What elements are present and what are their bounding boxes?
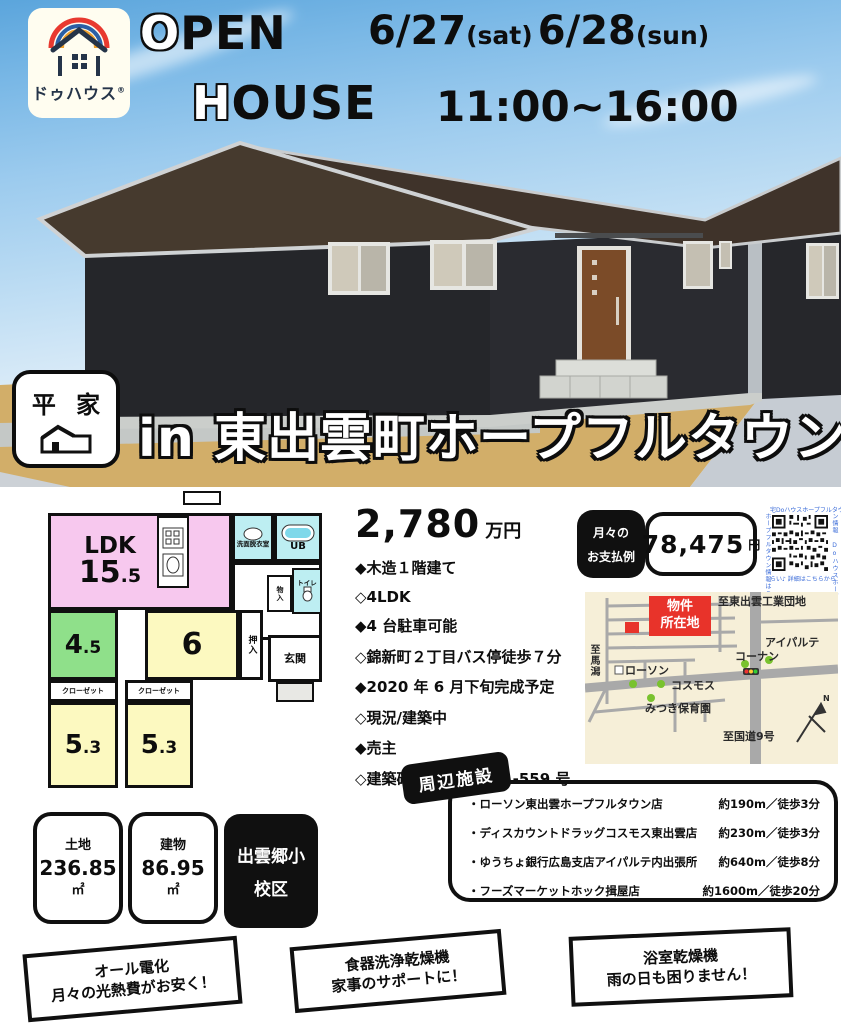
- closet-a: クローゼット: [48, 680, 118, 702]
- title-house-outlined-letter: H: [192, 76, 232, 130]
- land-unit: ㎡: [71, 884, 84, 897]
- feature-item: ◆2020 年 6 月下旬完成予定: [355, 676, 570, 697]
- title-house-rest: OUSE: [232, 76, 377, 130]
- map-label-cosmos: コスモス: [671, 677, 715, 693]
- facility-distance: 約230m／徒歩3分: [719, 825, 821, 841]
- building-value: 86.95: [141, 858, 204, 878]
- facility-distance: 約1600m／徒歩20分: [703, 883, 821, 899]
- qr-caption-left: ホープフルタウン情報はこ: [763, 513, 772, 597]
- facility-distance: 約640m／徒歩8分: [719, 854, 821, 870]
- room-4-5-size: 4: [65, 630, 83, 660]
- qr-caption-bottom: らい♪ 詳細はこちらから: [770, 574, 836, 583]
- toilet-icon: [302, 586, 313, 602]
- facility-row: ・フーズマーケットホック揖屋店 約1600m／徒歩20分: [468, 883, 820, 899]
- entrance-door-icon: [577, 246, 631, 369]
- floor-plan: LDK 15.5 洗面脱衣室 UB 物入 トイレ 4.5: [35, 500, 335, 800]
- facility-name: ・ディスカウントドラッグコスモス東出雲店: [468, 825, 697, 841]
- room-washroom-label: 洗面脱衣室: [237, 541, 270, 548]
- qr-code-icon: [772, 515, 828, 571]
- callout-line1: 物件: [667, 599, 693, 616]
- entrance-steps: [540, 360, 667, 398]
- title-open-rest: PEN: [180, 6, 287, 60]
- date-sunday: 6/28: [538, 8, 636, 54]
- date-saturday: 6/27: [368, 8, 466, 54]
- room-5-3-a-size-dec: .3: [83, 738, 101, 758]
- window-icon: [683, 241, 713, 289]
- room-toilet: トイレ: [292, 568, 322, 614]
- building-area-box: 建物 86.95 ㎡: [128, 812, 218, 924]
- room-6-size: 6: [182, 630, 203, 660]
- land-label: 土地: [65, 839, 91, 852]
- room-5-3-b-size-dec: .3: [159, 738, 177, 758]
- traffic-light-icon: [743, 668, 759, 675]
- entrance-genkan-label: 玄関: [284, 653, 306, 664]
- banner-line1: オール電化: [94, 958, 170, 979]
- map-label-konan: コーナン: [735, 648, 779, 664]
- door-canopy: [555, 233, 703, 238]
- payment-amount: 78,475: [642, 530, 744, 559]
- window-icon: [430, 240, 497, 290]
- poi-dot: [657, 680, 665, 688]
- room-5-3-b: 5.3: [125, 702, 193, 788]
- map-label-mitsuki: みつき保育園: [645, 700, 711, 716]
- feature-banner-all-electric: オール電化 月々の光熱費がお安く！: [22, 936, 242, 1022]
- kitchen-area: [157, 516, 189, 588]
- map-dest-left: 至馬潟: [586, 644, 601, 677]
- feature-banner-bath-dryer: 浴室乾燥機 雨の日も困りません！: [569, 927, 794, 1007]
- facility-name: ・ゆうちょ銀行広島支店アイパルテ内出張所: [468, 854, 697, 870]
- payment-label-2: お支払例: [587, 548, 635, 565]
- room-washroom: 洗面脱衣室: [232, 513, 274, 562]
- facility-name: ・フーズマーケットホック揖屋店: [468, 883, 640, 899]
- feature-item: ◇現況/建築中: [355, 707, 570, 728]
- price: 2,780 万円: [355, 502, 521, 546]
- payment-label-1: 月々の: [593, 524, 629, 541]
- qr-caption-right: ン情報 Doハウスホープ: [830, 513, 839, 600]
- map-dest-bottom: 至国道9号: [723, 728, 775, 744]
- storage-monoire: 物入: [267, 575, 292, 612]
- title-house: HOUSE: [192, 76, 377, 130]
- feature-item: ◆4 台駐車可能: [355, 615, 570, 636]
- company-logo: ドゥハウス®: [28, 8, 130, 118]
- lawson-icon: [615, 666, 623, 674]
- facility-row: ・ローソン東出雲ホープフルタウン店 約190m／徒歩3分: [468, 796, 820, 812]
- facility-distance: 約190m／徒歩3分: [719, 796, 821, 812]
- compass-icon: [797, 704, 825, 742]
- school-district-label: 校区: [254, 875, 288, 900]
- room-5-3-b-size: 5: [141, 730, 159, 760]
- room-4-5-size-dec: .5: [83, 638, 101, 658]
- closet-oshiire: 押入: [239, 610, 263, 680]
- open-house-flyer: { "header": { "logo": { "brand": "ドゥハウス"…: [0, 0, 841, 1024]
- price-amount: 2,780: [355, 502, 480, 546]
- entrance-porch: [276, 682, 314, 702]
- feature-item: ◆売主: [355, 737, 570, 758]
- property-marker: [625, 622, 639, 633]
- bathtub-icon: [281, 524, 315, 542]
- facility-row: ・ゆうちょ銀行広島支店アイパルテ内出張所 約640m／徒歩8分: [468, 854, 820, 870]
- building-unit: ㎡: [166, 884, 179, 897]
- poi-dot: [629, 680, 637, 688]
- room-ldk-size-dec: .5: [121, 565, 141, 587]
- banner-line2: 雨の日も困りません！: [606, 966, 756, 988]
- compass-label: N: [823, 694, 830, 703]
- banner-line1: 浴室乾燥機: [643, 948, 719, 966]
- feature-banner-dishwasher: 食器洗浄乾燥機 家事のサポートに！: [290, 929, 507, 1013]
- room-ldk: LDK 15.5: [48, 513, 232, 610]
- land-value: 236.85: [39, 858, 116, 878]
- payment-unit: 円: [748, 536, 760, 553]
- event-time: 11:00~16:00: [436, 82, 739, 131]
- date-saturday-dow: (sat): [466, 21, 533, 50]
- window-icon: [719, 241, 732, 269]
- feature-item: ◇錦新町２丁目バス停徒歩７分: [355, 646, 570, 667]
- nearby-facilities-box: ・ローソン東出雲ホープフルタウン店 約190m／徒歩3分 ・ディスカウントドラッ…: [448, 780, 838, 902]
- window-icon: [328, 242, 390, 295]
- facility-name: ・ローソン東出雲ホープフルタウン店: [468, 796, 663, 812]
- qr-block: 宅Doハウスホープフルタウ ホープフルタウン情報はこ ン情報 Doハウスホープ …: [763, 505, 839, 583]
- details-sheet: LDK 15.5 洗面脱衣室 UB 物入 トイレ 4.5: [0, 487, 841, 1024]
- house-icon: [40, 424, 92, 454]
- monthly-payment-amount-box: 78,475 円: [645, 512, 757, 576]
- closet-a-label: クローゼット: [62, 688, 104, 695]
- banner-line2: 月々の光熱費がお安く！: [51, 974, 217, 1003]
- facility-row: ・ディスカウントドラッグコスモス東出雲店 約230m／徒歩3分: [468, 825, 820, 841]
- monthly-payment-badge: 月々の お支払例: [577, 510, 645, 578]
- title-open-outlined-letter: O: [140, 6, 180, 60]
- window-icon: [806, 243, 839, 299]
- room-bath: UB: [274, 513, 322, 562]
- map-label-lawson: ローソン: [625, 662, 669, 678]
- banner-location: in 東出雲町ホープフルタウン: [138, 396, 840, 471]
- event-dates: 6/27(sat) 6/28(sun): [368, 8, 709, 54]
- title-open: OPEN: [140, 6, 287, 60]
- rainbow-house-icon: [43, 14, 115, 78]
- map-dest-top: 至東出雲工業団地: [718, 593, 806, 609]
- badge-title: 平 家: [26, 385, 106, 420]
- room-ldk-size: 15: [79, 555, 121, 590]
- feature-item: ◆木造１階建て: [355, 557, 570, 578]
- school-district-box: 出雲郷小 校区: [224, 814, 318, 928]
- entrance-genkan: 玄関: [268, 635, 322, 682]
- callout-line2: 所在地: [660, 616, 699, 633]
- room-6: 6: [145, 610, 239, 680]
- corner-trim: [748, 231, 762, 401]
- feature-item: ◇4LDK: [355, 588, 570, 606]
- land-area-box: 土地 236.85 ㎡: [33, 812, 123, 924]
- logo-brand: ドゥハウス: [32, 84, 117, 103]
- single-story-badge: 平 家: [12, 370, 120, 468]
- date-sunday-dow: (sun): [636, 21, 709, 50]
- registered-mark: ®: [117, 86, 126, 95]
- room-4-5: 4.5: [48, 610, 118, 680]
- room-5-3-a: 5.3: [48, 702, 118, 788]
- closet-oshiire-label: 押入: [247, 635, 256, 655]
- access-map: 物件 所在地 至東出雲工業団地 アイパルテ コーナン ローソン コスモス みつき…: [585, 592, 838, 764]
- plan-bump: [183, 491, 221, 505]
- closet-b: クローゼット: [125, 680, 193, 702]
- building-label: 建物: [160, 839, 186, 852]
- room-5-3-a-size: 5: [65, 730, 83, 760]
- price-unit: 万円: [485, 521, 521, 542]
- closet-b-label: クローゼット: [138, 688, 180, 695]
- kitchen-stove-icon: [162, 527, 184, 577]
- school-name: 出雲郷小: [237, 842, 305, 867]
- storage-label: 物入: [276, 586, 283, 602]
- room-bath-label: UB: [290, 542, 306, 552]
- property-location-callout: 物件 所在地: [649, 596, 711, 636]
